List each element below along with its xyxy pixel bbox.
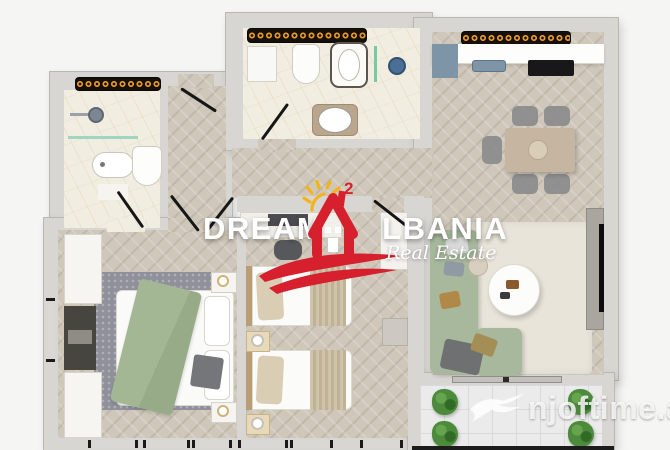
svg-text:2: 2 [344,180,353,198]
dining-chair [544,106,570,126]
potted-plant [432,389,458,415]
radiator-kitchen [462,32,570,44]
sliding-glass-door-handle [503,377,509,382]
nightstand-lamp [217,275,229,287]
window [238,440,288,448]
bath-basin [318,107,352,133]
window [192,440,232,448]
nightstand-lamp [217,405,229,417]
bed-throw [310,350,346,410]
nightstand-lamp [251,417,264,430]
tv-screen [599,224,604,312]
dining-chair [512,174,538,194]
toilet [132,146,162,186]
site-watermark-text: njoftime.al [528,392,670,424]
brand-tagline: Real Estate [386,242,496,264]
dining-chair [482,136,502,164]
brand-text-right: LBANIA [382,213,508,244]
sofa-pillow [439,290,461,309]
sink-drain [100,162,105,167]
media-unit-shelf [68,330,92,344]
window [360,440,403,448]
dining-chair [544,174,570,194]
coffee-table [488,264,540,316]
radiator-bathroom-2 [248,29,366,42]
site-watermark: njoftime.al [468,390,670,426]
shower-arm [70,113,90,116]
wardrobe [64,234,102,304]
toilet [292,44,320,84]
cooktop [528,60,574,76]
bed-pillow [256,355,284,404]
potted-plant [432,421,458,447]
shower-head [388,57,406,75]
table-decor [506,280,519,289]
dining-chair [512,106,538,126]
shower-glass [374,46,377,82]
shower-head [88,107,104,123]
bath2-threshold [258,139,296,150]
window [88,440,138,448]
vanity-basin [338,49,360,81]
table-centerpiece [528,140,548,160]
radiator-bathroom-1 [76,78,160,90]
bed-pillow [204,296,230,346]
fridge [432,44,458,78]
bird-icon [468,390,526,426]
bed-throw [190,354,224,390]
dresser [382,318,408,346]
house-logo-icon: 2 [302,180,364,260]
sink [92,152,134,178]
kitchen-sink [472,60,506,72]
glass-shelf [68,136,138,139]
washing-machine [247,46,277,82]
hallway-floor [168,86,226,218]
wardrobe [64,372,102,438]
window [290,440,333,448]
floorplan-image: DREAM LBANIA 2 Real Estate njoftime.al [0,0,670,450]
window [143,440,190,448]
window [46,298,55,362]
entry-threshold [178,74,214,88]
table-decor [500,292,510,299]
balcony-railing [412,446,614,450]
nightstand-lamp [251,334,264,347]
